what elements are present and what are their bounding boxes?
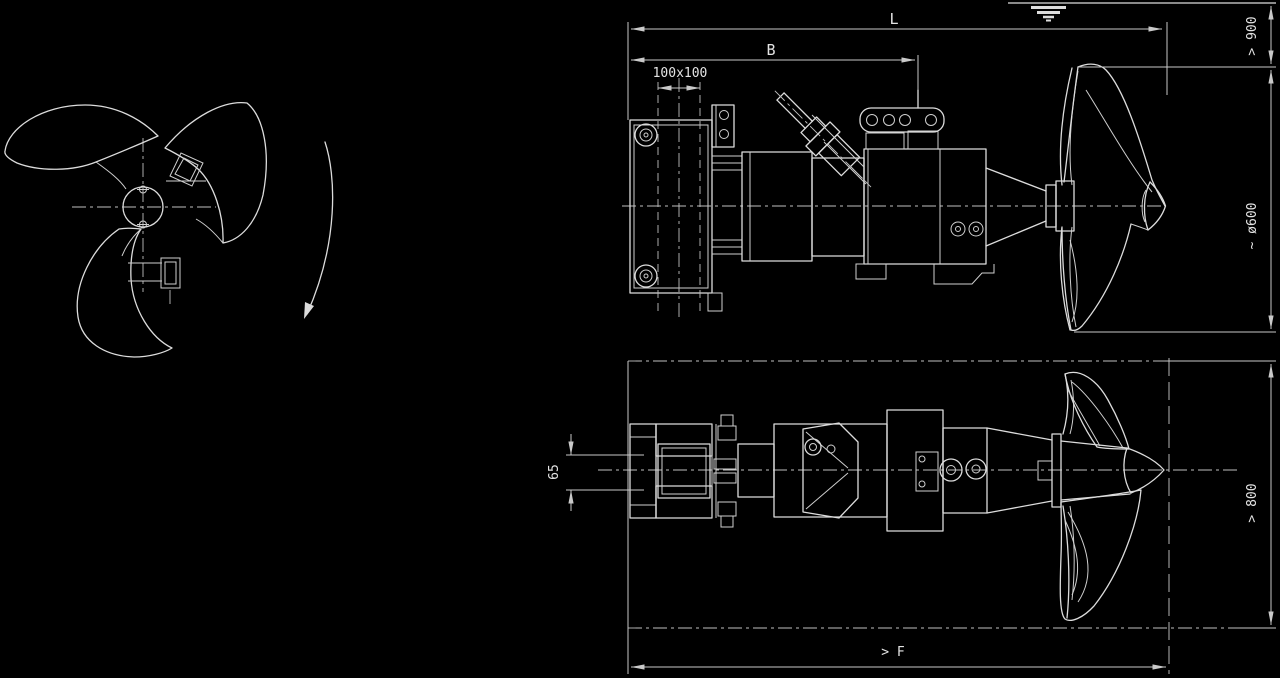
lifting-bar [860, 90, 944, 132]
mounting-plate [630, 78, 722, 318]
mixer-side-view [622, 3, 1276, 330]
dim-label-guide-width: 65 [547, 464, 562, 480]
rotation-direction-arrow-icon [304, 142, 333, 319]
blade-upper-left [5, 105, 158, 169]
hub-clamp-top [166, 153, 206, 186]
propeller-front-view [5, 103, 333, 357]
water-level-icon [1008, 3, 1276, 21]
dim-label-min-submergence: > 900 [1245, 16, 1260, 55]
motor-housing-plan [738, 410, 987, 531]
propeller-side-view [1060, 64, 1165, 330]
cable-gland [763, 79, 883, 199]
motor-housing-side [742, 131, 994, 284]
dim-label-min-free-distance: > F [881, 645, 905, 660]
dim-label-bottom-clearance: > 800 [1245, 483, 1260, 522]
gear-cone-plan [987, 428, 1061, 513]
hub-clamp-bottom [128, 258, 180, 308]
clamp-bolts-plan [714, 415, 736, 527]
guide-bracket [712, 105, 734, 147]
dimension-annotations: L B 100x100 > 900 ~ ø600 > 800 65 > F [547, 6, 1276, 674]
technical-drawing-page: L B 100x100 > 900 ~ ø600 > 800 65 > F [0, 0, 1280, 678]
blade-bottom [77, 228, 172, 357]
dim-label-length: L [889, 10, 898, 28]
dim-label-bracket: B [766, 41, 775, 59]
mixer-plan-view [598, 372, 1238, 620]
propeller-plan-view [1060, 372, 1164, 620]
blade-upper-right [165, 103, 266, 243]
dim-label-mast-profile: 100x100 [653, 66, 708, 81]
mixer-dimension-drawing: L B 100x100 > 900 ~ ø600 > 800 65 > F [0, 0, 1280, 678]
dim-label-propeller-diameter: ~ ø600 [1245, 203, 1260, 250]
cable-gland-plan [803, 423, 858, 518]
guide-claw-plan [630, 424, 716, 518]
